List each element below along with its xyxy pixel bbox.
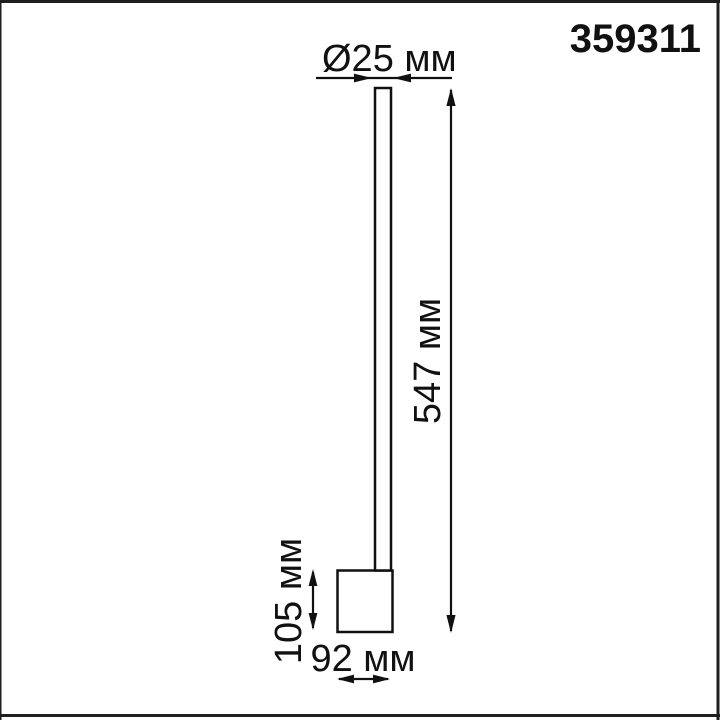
base-width-label: 92 мм bbox=[310, 638, 415, 680]
lamp-tube bbox=[375, 88, 391, 571]
height-label: 547 мм bbox=[407, 298, 449, 424]
height-arrowhead-down bbox=[446, 615, 455, 633]
product-dimension-drawing: Ø25 мм 547 мм 105 мм 92 мм 359311 bbox=[0, 0, 720, 720]
base-height-label: 105 мм bbox=[268, 538, 310, 664]
dimension-diagram: Ø25 мм 547 мм 105 мм 92 мм 359311 bbox=[0, 0, 720, 720]
height-dimension: 547 мм bbox=[407, 88, 456, 633]
product-code: 359311 bbox=[570, 17, 701, 61]
diameter-label: Ø25 мм bbox=[322, 38, 457, 80]
base-width-dimension: 92 мм bbox=[310, 638, 415, 683]
lamp-outline bbox=[338, 88, 393, 632]
height-arrowhead-up bbox=[446, 88, 455, 106]
diameter-dimension: Ø25 мм bbox=[316, 38, 457, 82]
lamp-base bbox=[338, 571, 393, 633]
